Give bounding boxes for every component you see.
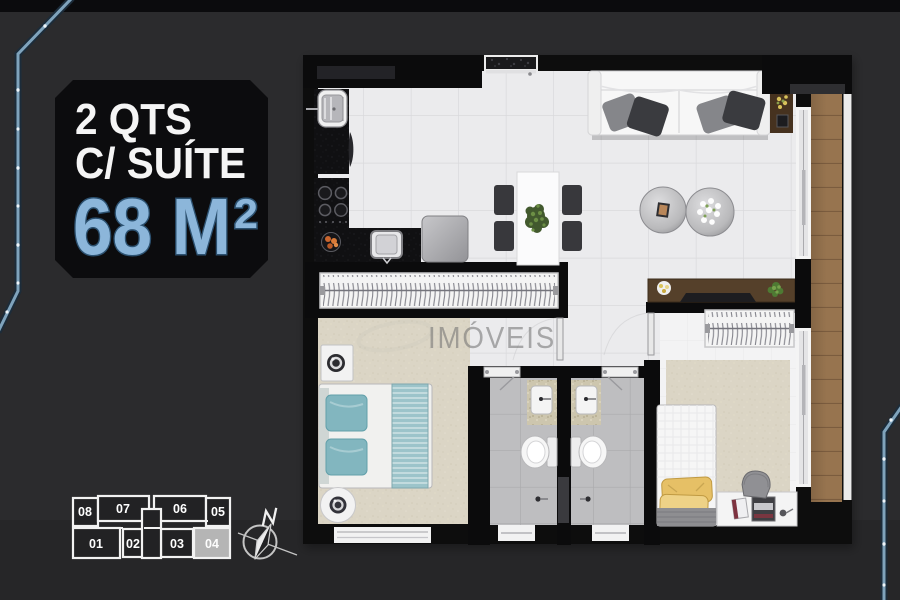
svg-text:IMÓVEIS: IMÓVEIS [428, 320, 556, 355]
svg-text:01: 01 [89, 537, 103, 551]
svg-text:2: 2 [234, 190, 258, 237]
svg-text:07: 07 [116, 502, 130, 516]
svg-text:02: 02 [126, 537, 140, 551]
svg-text:06: 06 [173, 502, 187, 516]
svg-text:68 M: 68 M [73, 182, 231, 271]
svg-text:08: 08 [78, 505, 92, 519]
svg-text:05: 05 [211, 505, 225, 519]
svg-text:03: 03 [170, 537, 184, 551]
svg-text:2 QTS: 2 QTS [75, 95, 192, 144]
svg-text:C/ SUÍTE: C/ SUÍTE [75, 138, 246, 188]
svg-text:04: 04 [205, 537, 219, 551]
